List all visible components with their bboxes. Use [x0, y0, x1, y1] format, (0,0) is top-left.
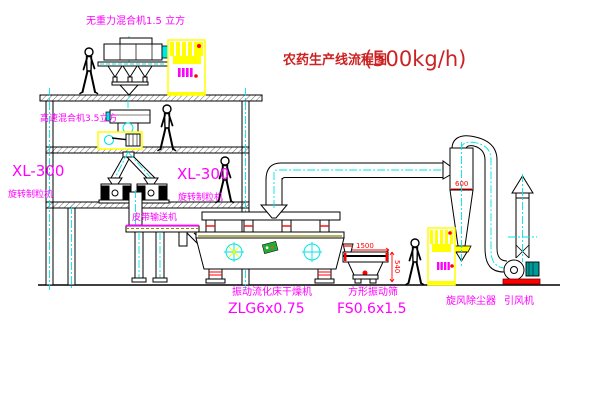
spring-mount-left	[206, 269, 225, 283]
gravity-free-mixer	[98, 36, 169, 98]
exhaust-duct	[261, 161, 450, 218]
indicator-light	[448, 231, 452, 235]
indicator-light	[194, 74, 198, 78]
diagram-title-capacity: (500kg/h)	[364, 47, 466, 71]
label-belt-conveyor: 皮带输送机	[132, 211, 177, 223]
control-cabinet-2	[428, 228, 455, 285]
dimension-sieve-1500: 1500	[356, 242, 374, 250]
worker-figure	[80, 48, 98, 94]
exhaust-stack	[508, 174, 537, 262]
dimension-sieve-540: 540	[393, 260, 401, 273]
dryer-ports	[206, 220, 329, 232]
y-chute	[111, 152, 155, 178]
induced-draft-fan	[503, 260, 540, 284]
label-dryer-model: ZLG6x0.75	[228, 301, 305, 317]
worker-figure	[158, 105, 176, 151]
fluid-bed-dryer	[196, 212, 344, 283]
label-xl300-right: XL-300	[177, 165, 229, 183]
indicator-light	[197, 44, 201, 48]
label-sieve: 方形振动筛	[348, 285, 398, 298]
dimension-cyclone-600: 600	[455, 180, 468, 188]
label-granulator-right: 旋转制粒机	[178, 191, 223, 203]
diagram-canvas: 农药生产线流程图 (500kg/h) 无重力混合机1.5 立方 高速混合机3.5…	[0, 0, 600, 403]
label-gravity-mixer: 无重力混合机1.5 立方	[86, 14, 185, 27]
cyclone-separator	[450, 136, 507, 272]
label-xl300-left: XL-300	[12, 162, 64, 180]
label-sieve-model: FS0.6x1.5	[337, 301, 407, 317]
label-granulator-left: 旋转制粒机	[8, 188, 53, 200]
indicator-light	[450, 264, 454, 268]
granulator-left	[99, 178, 133, 203]
label-speed-mixer: 高速混合机3.5立方	[40, 112, 117, 124]
label-fan: 引风机	[504, 294, 534, 307]
cad-flow-diagram: 农药生产线流程图 (500kg/h) 无重力混合机1.5 立方 高速混合机3.5…	[0, 0, 600, 403]
label-dryer: 振动流化床干燥机	[232, 285, 312, 298]
worker-figure	[406, 239, 424, 285]
spring-mount-right	[315, 269, 334, 283]
label-cyclone: 旋风除尘器	[446, 294, 496, 307]
high-speed-mixer	[98, 100, 150, 152]
control-cabinet-1	[168, 40, 205, 95]
